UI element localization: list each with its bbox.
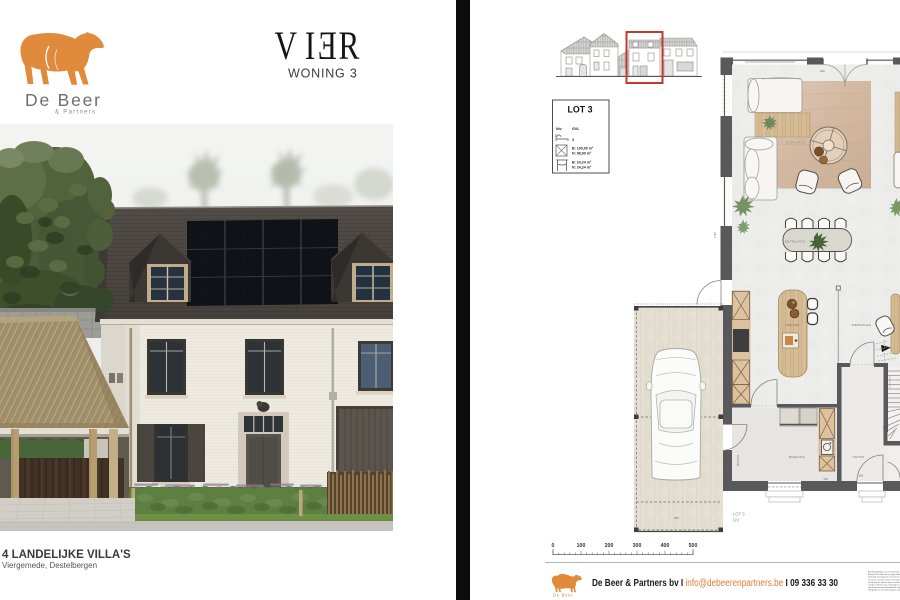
svg-text:WONING 3: WONING 3 [288, 67, 358, 81]
svg-text:VERDIEPING: VERDIEPING [888, 375, 890, 389]
svg-text:WERKPLEK: WERKPLEK [852, 323, 872, 327]
svg-text:uitvoering. Er kunnen geen rec: uitvoering. Er kunnen geen rechten aan [868, 581, 900, 584]
svg-text:Niv: Niv [556, 127, 562, 131]
svg-text:DOUCHE: DOUCHE [736, 455, 740, 467]
svg-text:150: 150 [859, 474, 864, 478]
svg-text:EETPLAATS: EETPLAATS [785, 240, 805, 244]
svg-text:LOT 3: LOT 3 [568, 105, 593, 115]
svg-text:& Partners: & Partners [55, 110, 96, 116]
svg-text:N: 24,24 m²: N: 24,24 m² [572, 166, 592, 170]
svg-text:BERGING: BERGING [789, 455, 806, 459]
svg-text:Viergemede, Destelbergen: Viergemede, Destelbergen [2, 561, 97, 570]
svg-text:B: 24,24 m²: B: 24,24 m² [572, 161, 592, 165]
svg-text:500: 500 [689, 543, 698, 549]
svg-text:Alle afbeeldingen zijn ter ill: Alle afbeeldingen zijn ter illustratie e… [868, 571, 900, 574]
svg-text:3: 3 [572, 138, 574, 142]
svg-text:inbegrepen in de aankoopprijs.: inbegrepen in de aankoopprijs. 2023. [868, 589, 900, 592]
svg-text:ZITPLAATS: ZITPLAATS [786, 141, 805, 145]
svg-text:in functie van technische vere: in functie van technische vereisten en d… [868, 578, 900, 581]
svg-text:640: 640 [820, 69, 825, 73]
svg-text:0: 0 [552, 543, 555, 549]
svg-text:bindend. De plannen en oppervl: bindend. De plannen en oppervlaktes zijn [868, 573, 900, 576]
svg-text:De Beer: De Beer [553, 593, 573, 598]
svg-text:E: E [318, 23, 337, 68]
svg-text:290: 290 [674, 516, 679, 520]
svg-text:De Beer & Partners bv I info@d: De Beer & Partners bv I info@debeerenpar… [592, 578, 838, 589]
svg-text:R: R [338, 23, 359, 68]
svg-text:WP: WP [824, 477, 829, 481]
svg-text:N: 98,90 m²: N: 98,90 m² [572, 152, 592, 156]
svg-text:KEUKEN: KEUKEN [786, 323, 800, 327]
svg-text:I: I [305, 23, 315, 68]
svg-text:De Beer: De Beer [25, 90, 102, 110]
svg-text:LOT 3: LOT 3 [733, 512, 745, 517]
svg-text:V: V [275, 23, 298, 68]
svg-text:zijn louter decoratief bedoeld: zijn louter decoratief bedoeld en zijn n… [868, 586, 900, 589]
svg-text:GV: GV [733, 518, 739, 523]
svg-text:200: 200 [605, 543, 614, 549]
svg-text:100: 100 [577, 543, 586, 549]
svg-text:INKOM: INKOM [853, 455, 865, 459]
svg-text:B: 109,00 m²: B: 109,00 m² [572, 147, 594, 151]
svg-text:worden ontleend. De inrichting: worden ontleend. De inrichting en meubel… [868, 584, 900, 587]
svg-text:4 LANDELIJKE VILLA'S: 4 LANDELIJKE VILLA'S [2, 549, 131, 561]
svg-text:indicatief weergegeven en kunn: indicatief weergegeven en kunnen wijzige… [868, 576, 900, 579]
svg-text:1795: 1795 [713, 232, 717, 238]
svg-text:400: 400 [661, 543, 670, 549]
svg-text:300: 300 [633, 543, 642, 549]
svg-text:GVL: GVL [572, 127, 580, 131]
